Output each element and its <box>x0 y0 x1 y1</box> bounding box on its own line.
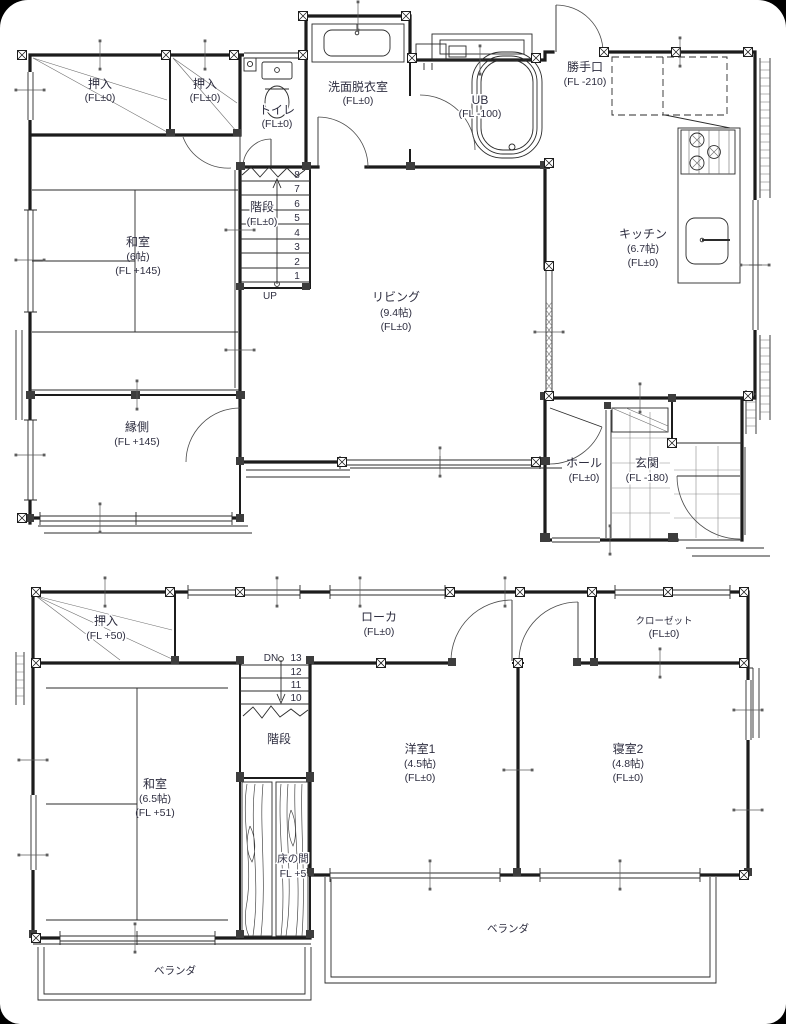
svg-text:リビング: リビング <box>372 290 420 304</box>
stair-step-number: 5 <box>294 213 300 224</box>
stair-step-number: 1 <box>294 271 300 282</box>
svg-text:(FL±0): (FL±0) <box>613 772 644 784</box>
stair-step-number: 11 <box>291 680 302 691</box>
room-label-oshiire-left-1f: 押入(FL±0) <box>85 77 116 104</box>
stair-step-number: 8 <box>294 170 300 181</box>
room-label-genkan: 玄関(FL -180) <box>626 455 669 484</box>
stair-step-number: 7 <box>294 184 300 195</box>
svg-text:UB: UB <box>472 93 489 107</box>
room-labels-1f: 押入(FL±0) 押入(FL±0) トイレ(FL±0) 洗面脱衣室(FL±0) … <box>85 59 669 484</box>
svg-text:(9.4帖): (9.4帖) <box>380 306 412 319</box>
svg-text:(FL±0): (FL±0) <box>262 118 293 130</box>
room-label-living: リビング(9.4帖)(FL±0) <box>372 290 420 333</box>
floorplan-page: 8 7 6 5 4 3 2 1 UP <box>0 0 786 1024</box>
room-label-yoshitsu1: 洋室1(4.5帖)(FL±0) <box>404 741 436 784</box>
room-label-kitchen: キッチン(6.7帖)(FL±0) <box>619 227 667 269</box>
svg-text:キッチン: キッチン <box>619 227 667 241</box>
svg-text:(FL +145): (FL +145) <box>114 436 159 448</box>
svg-text:クローゼット: クローゼット <box>635 615 692 627</box>
svg-text:階段: 階段 <box>267 731 291 746</box>
svg-text:(FL±0): (FL±0) <box>85 92 116 104</box>
room-label-closet-2f: クローゼット(FL±0) <box>635 615 692 640</box>
svg-text:階段: 階段 <box>250 199 274 214</box>
room-label-veranda-left: ベランダ <box>154 964 196 977</box>
svg-text:(FL±0): (FL±0) <box>364 626 395 638</box>
svg-text:玄関: 玄関 <box>635 455 659 470</box>
svg-text:(FL±0): (FL±0) <box>569 472 600 484</box>
svg-text:(FL±0): (FL±0) <box>247 216 278 228</box>
svg-text:ベランダ: ベランダ <box>487 922 529 935</box>
svg-text:押入: 押入 <box>193 77 217 91</box>
svg-text:(6帖): (6帖) <box>126 250 149 263</box>
stair-step-number: 3 <box>294 242 300 253</box>
svg-text:(FL±0): (FL±0) <box>628 257 659 269</box>
room-label-shinshitsu2: 寝室2(4.8帖)(FL±0) <box>612 741 644 784</box>
exterior-hatch-2f <box>16 652 24 705</box>
svg-text:FL +5: FL +5 <box>280 868 307 880</box>
svg-text:(FL±0): (FL±0) <box>343 95 374 107</box>
svg-text:勝手口: 勝手口 <box>567 59 603 74</box>
svg-text:(FL±0): (FL±0) <box>190 92 221 104</box>
svg-text:トイレ: トイレ <box>259 103 295 117</box>
svg-text:押入: 押入 <box>88 77 112 91</box>
stairs-dn-label: DN <box>264 653 278 664</box>
room-label-oshiire-right-1f: 押入(FL±0) <box>190 77 221 104</box>
tatami-lines-2f <box>46 688 228 920</box>
svg-text:(6.5帖): (6.5帖) <box>139 792 171 805</box>
kitchen-counter <box>678 128 740 283</box>
room-label-veranda-right: ベランダ <box>487 922 529 935</box>
stair-step-number: 6 <box>294 199 300 210</box>
svg-text:押入: 押入 <box>94 614 118 628</box>
svg-text:ローカ: ローカ <box>361 610 397 624</box>
svg-text:(FL +51): (FL +51) <box>135 807 175 819</box>
svg-text:(FL -100): (FL -100) <box>459 108 502 120</box>
room-label-toilet: トイレ(FL±0) <box>259 103 295 130</box>
svg-text:(FL +145): (FL +145) <box>115 265 160 277</box>
svg-text:洗面脱衣室: 洗面脱衣室 <box>328 79 388 94</box>
svg-text:ホール: ホール <box>566 456 602 470</box>
svg-text:縁側: 縁側 <box>125 419 149 434</box>
svg-text:(FL -210): (FL -210) <box>564 76 607 88</box>
svg-text:洋室1: 洋室1 <box>405 741 436 756</box>
room-label-backdoor: 勝手口(FL -210) <box>564 59 607 88</box>
room-label-washitsu-2f: 和室(6.5帖)(FL +51) <box>135 776 175 819</box>
stairs-2f: DN 13 12 11 10 <box>240 653 310 718</box>
stair-step-number: 12 <box>290 667 302 678</box>
refrigerator-space <box>612 57 730 128</box>
stair-step-number: 10 <box>290 693 302 704</box>
svg-text:(4.5帖): (4.5帖) <box>404 757 436 770</box>
room-label-bath: UB(FL -100) <box>459 93 502 120</box>
stair-step-number: 13 <box>290 653 302 664</box>
svg-text:寝室2: 寝室2 <box>613 741 644 756</box>
room-label-oshiire-2f: 押入(FL +50) <box>86 614 126 642</box>
room-label-washroom: 洗面脱衣室(FL±0) <box>328 79 388 107</box>
svg-text:ベランダ: ベランダ <box>154 964 196 977</box>
room-labels-2f: 押入(FL +50) ローカ(FL±0) クローゼット(FL±0) 階段 和室(… <box>86 610 692 977</box>
svg-text:(FL±0): (FL±0) <box>381 321 412 333</box>
room-label-stairs-2f: 階段 <box>267 731 291 746</box>
svg-text:和室: 和室 <box>126 234 150 249</box>
door-arcs-2f <box>451 600 578 661</box>
stair-step-number: 4 <box>294 228 300 239</box>
room-label-stairs-1f: 階段(FL±0) <box>247 199 278 228</box>
room-label-roka: ローカ(FL±0) <box>361 610 397 638</box>
floor2-plan: DN 13 12 11 10 押入(FL +50) ローカ(FL±0) クローゼ… <box>16 577 764 1001</box>
stairs-up-label: UP <box>263 291 277 302</box>
stairs-1f: 8 7 6 5 4 3 2 1 UP <box>240 167 310 302</box>
svg-text:(6.7帖): (6.7帖) <box>627 242 659 255</box>
svg-text:(4.8帖): (4.8帖) <box>612 757 644 770</box>
svg-text:(FL +50): (FL +50) <box>86 630 126 642</box>
floor1-plan: 8 7 6 5 4 3 2 1 UP <box>15 1 771 557</box>
room-label-engawa: 縁側(FL +145) <box>114 419 159 448</box>
svg-text:(FL -180): (FL -180) <box>626 472 669 484</box>
room-label-hall: ホール(FL±0) <box>566 456 602 484</box>
svg-text:和室: 和室 <box>143 776 167 791</box>
stair-step-number: 2 <box>294 257 300 268</box>
svg-text:(FL±0): (FL±0) <box>405 772 436 784</box>
floorplan-drawing: 8 7 6 5 4 3 2 1 UP <box>0 0 786 1024</box>
svg-text:床の間: 床の間 <box>277 852 309 865</box>
room-label-washitsu-1f: 和室(6帖)(FL +145) <box>115 234 160 277</box>
svg-text:(FL±0): (FL±0) <box>649 628 680 640</box>
